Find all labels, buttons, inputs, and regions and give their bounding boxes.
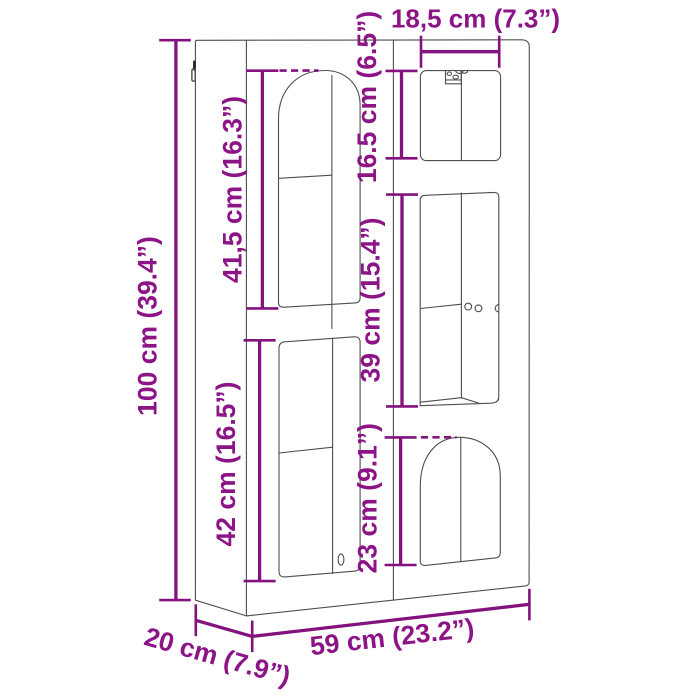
svg-text:100 cm (39.4”): 100 cm (39.4”) xyxy=(133,236,163,416)
svg-text:18,5 cm (7.3”): 18,5 cm (7.3”) xyxy=(391,4,560,34)
svg-text:23 cm (9.1”): 23 cm (9.1”) xyxy=(353,423,383,573)
svg-text:42 cm (16.5”): 42 cm (16.5”) xyxy=(211,382,241,547)
svg-text:16.5 cm (6.5”): 16.5 cm (6.5”) xyxy=(352,11,382,183)
svg-text:41,5 cm (16.3”): 41,5 cm (16.3”) xyxy=(217,96,247,283)
svg-text:39 cm (15.4”): 39 cm (15.4”) xyxy=(356,218,386,383)
